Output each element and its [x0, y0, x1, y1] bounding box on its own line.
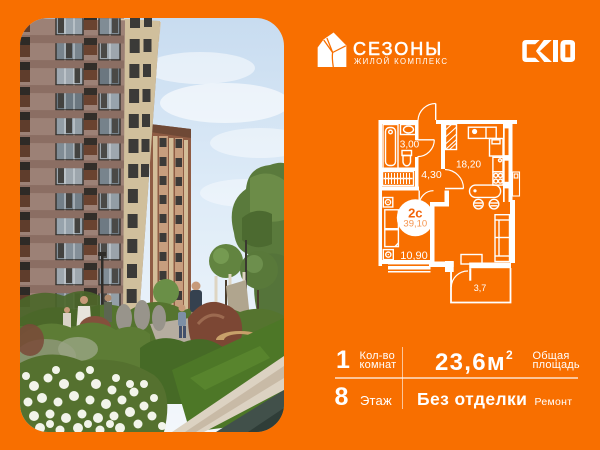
svg-text:3,7: 3,7 [474, 283, 487, 293]
svg-text:39,10: 39,10 [403, 219, 427, 230]
svg-text:3,00: 3,00 [400, 140, 420, 151]
svg-text:4,30: 4,30 [421, 169, 442, 181]
svg-text:18,20: 18,20 [456, 160, 481, 171]
svg-text:10,90: 10,90 [400, 250, 428, 262]
